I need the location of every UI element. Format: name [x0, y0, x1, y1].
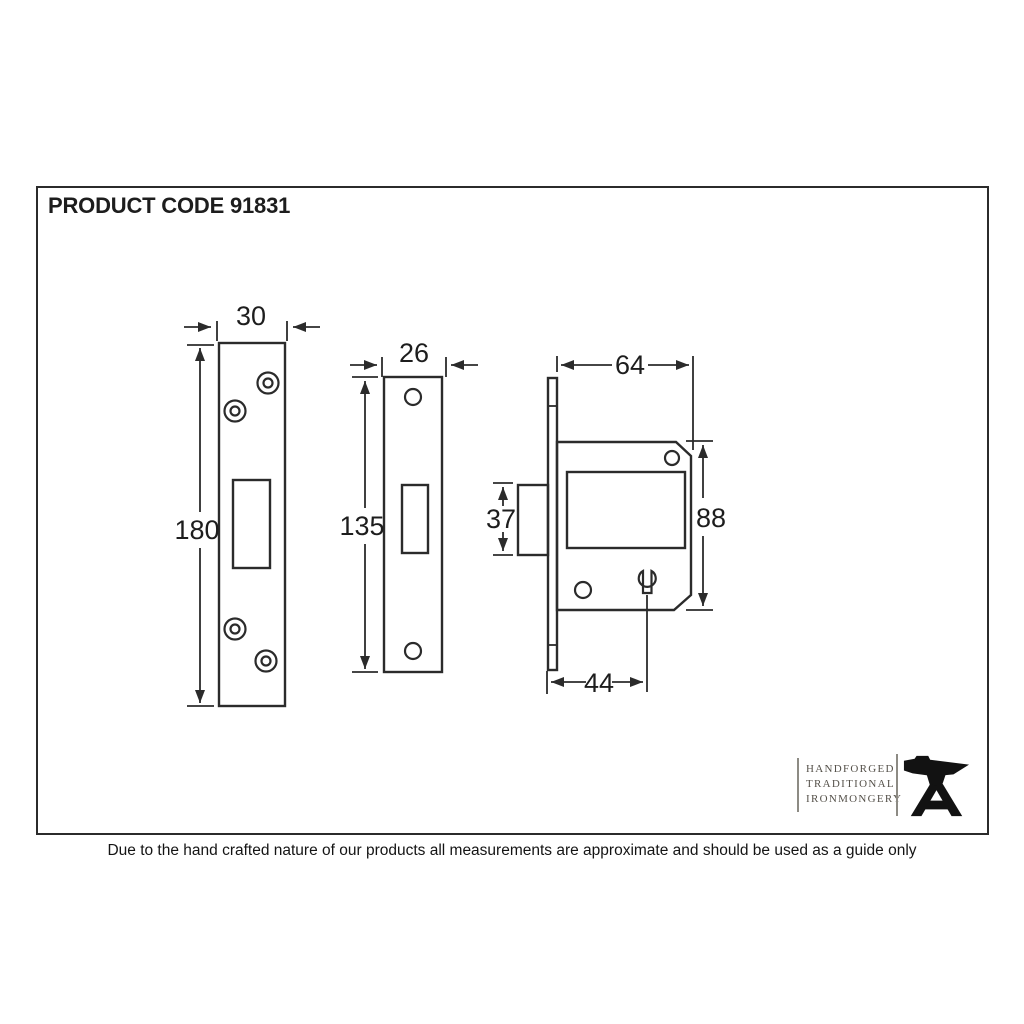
lock-case-inner-plate — [567, 472, 685, 548]
dim-label-backset: 44 — [584, 668, 614, 698]
technical-drawing: 30 180 26 135 — [0, 0, 1024, 1024]
dim-label-bolt-height: 37 — [486, 504, 516, 534]
faceplate-cutout — [402, 485, 428, 553]
keyhole — [639, 571, 656, 593]
deadbolt — [518, 485, 548, 555]
screw-hole — [225, 401, 246, 422]
faceplate-view — [384, 377, 442, 672]
case-hole — [575, 582, 591, 598]
dim-label-case-depth: 64 — [615, 350, 645, 380]
screw-hole — [405, 389, 421, 405]
logo-line: TRADITIONAL — [806, 777, 902, 792]
brand-logo: HANDFORGED TRADITIONAL IRONMONGERY — [790, 748, 975, 820]
screw-hole — [405, 643, 421, 659]
drawing-sheet: { "sheet": { "title": "PRODUCT CODE 9183… — [0, 0, 1024, 1024]
strike-plate-view — [219, 343, 285, 706]
strike-plate-cutout — [233, 480, 270, 568]
logo-divider — [797, 758, 799, 812]
case-screw-hole — [665, 451, 679, 465]
dim-label-case-height: 88 — [696, 503, 726, 533]
lock-case-view — [518, 378, 691, 670]
strike-plate-outline — [219, 343, 285, 706]
dim-label-plate2-width: 26 — [399, 338, 429, 368]
dim-label-plate2-height: 135 — [339, 511, 384, 541]
screw-hole — [256, 651, 277, 672]
logo-line: IRONMONGERY — [806, 792, 902, 807]
screw-hole — [258, 373, 279, 394]
disclaimer-text: Due to the hand crafted nature of our pr… — [0, 842, 1024, 860]
faceplate-outline — [384, 377, 442, 672]
logo-text: HANDFORGED TRADITIONAL IRONMONGERY — [806, 762, 902, 807]
dim-label-plate1-width: 30 — [236, 301, 266, 331]
forend-strip — [548, 378, 557, 670]
dim-label-plate1-height: 180 — [174, 515, 219, 545]
logo-divider — [896, 754, 898, 816]
anvil-icon — [902, 754, 970, 818]
logo-line: HANDFORGED — [806, 762, 902, 777]
screw-hole — [225, 619, 246, 640]
